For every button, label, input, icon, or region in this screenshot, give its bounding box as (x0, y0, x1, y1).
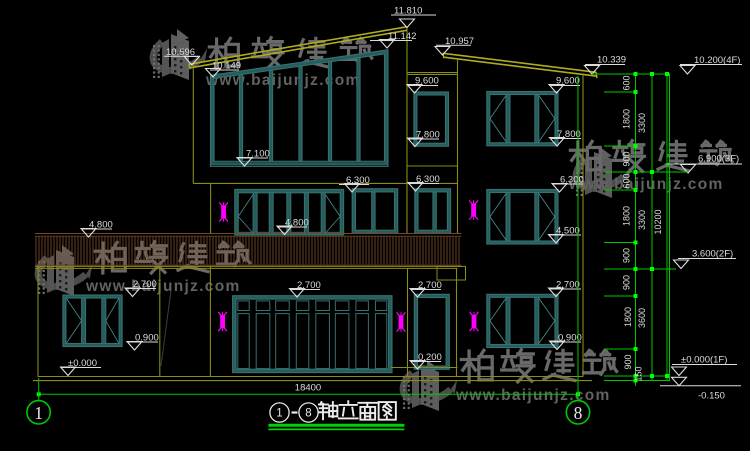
svg-text:8: 8 (305, 408, 311, 420)
svg-text:900: 900 (622, 151, 632, 166)
svg-text:±0.000(1F): ±0.000(1F) (681, 355, 727, 366)
svg-text:www.baijunjz.com: www.baijunjz.com (455, 387, 611, 404)
svg-text:10200: 10200 (653, 209, 663, 234)
svg-text:1: 1 (276, 408, 282, 420)
svg-text:3300: 3300 (637, 113, 647, 133)
svg-text:1800: 1800 (623, 307, 633, 327)
svg-text:3600: 3600 (637, 308, 647, 328)
svg-text:6.900(3F): 6.900(3F) (698, 154, 739, 165)
svg-text:900: 900 (622, 275, 632, 290)
svg-text:-0.150: -0.150 (698, 391, 725, 402)
svg-text:600: 600 (622, 173, 632, 188)
svg-text:www.baijunjz.com: www.baijunjz.com (568, 176, 724, 193)
svg-text:150: 150 (634, 366, 644, 381)
svg-text:900: 900 (622, 248, 632, 263)
svg-text:www.baijunjz.com: www.baijunjz.com (85, 278, 241, 295)
svg-text:8: 8 (574, 403, 583, 423)
svg-text:3.600(2F): 3.600(2F) (692, 249, 733, 260)
svg-text:3300: 3300 (637, 210, 647, 230)
svg-text:18400: 18400 (295, 383, 321, 394)
svg-text:10.339: 10.339 (597, 55, 626, 66)
svg-text:1800: 1800 (622, 206, 632, 226)
svg-text:1: 1 (34, 403, 43, 423)
svg-text:1800: 1800 (622, 109, 632, 129)
svg-text:900: 900 (623, 354, 633, 369)
svg-text:600: 600 (622, 75, 632, 90)
